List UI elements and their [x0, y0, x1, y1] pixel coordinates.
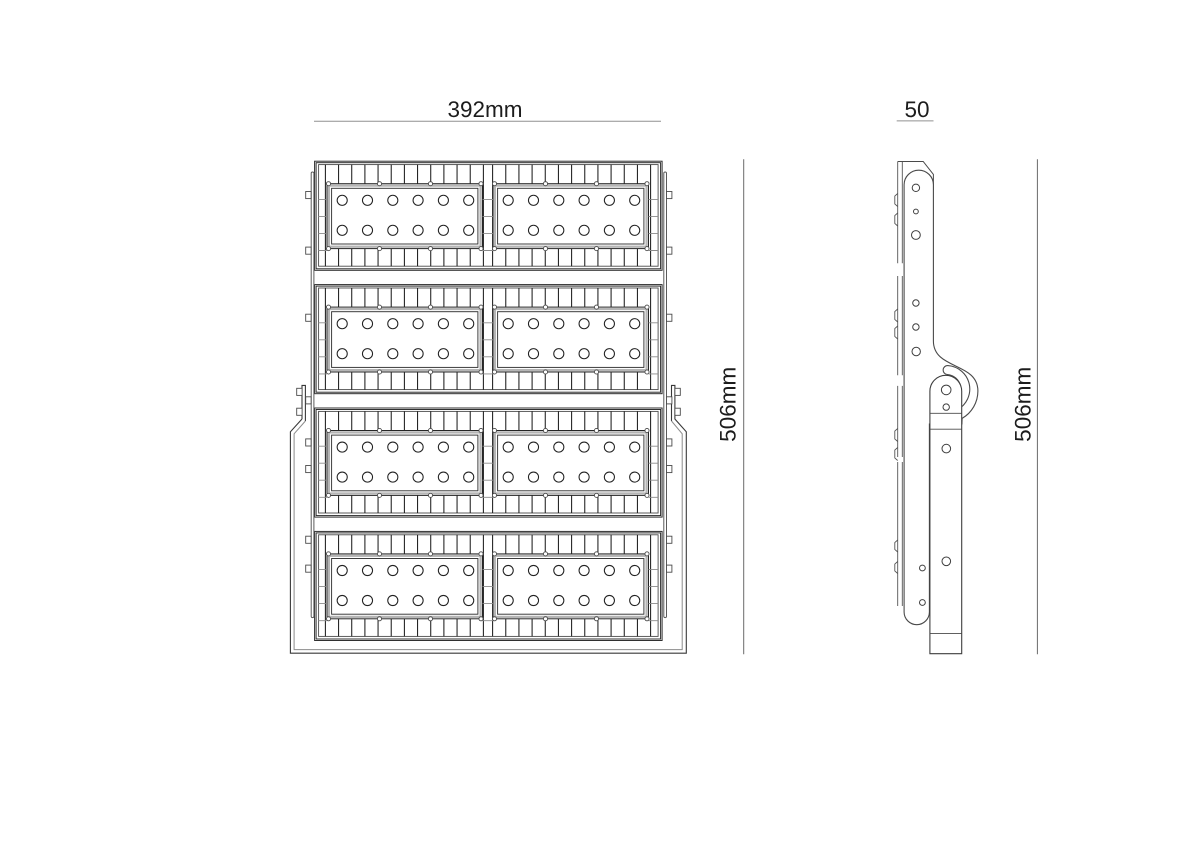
- svg-text:506mm: 506mm: [1010, 367, 1035, 442]
- svg-text:392mm: 392mm: [447, 97, 522, 122]
- svg-text:50: 50: [904, 97, 929, 122]
- svg-text:506mm: 506mm: [716, 367, 741, 442]
